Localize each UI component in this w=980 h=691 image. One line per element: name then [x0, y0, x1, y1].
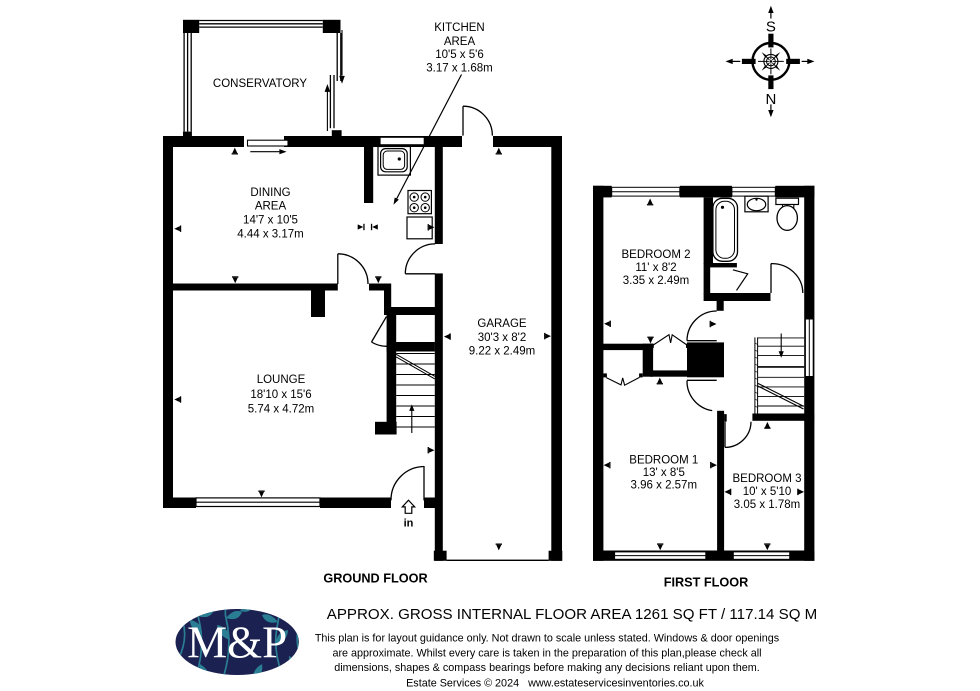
svg-text:This plan is for layout guidan: This plan is for layout guidance only. N…	[315, 633, 780, 645]
svg-text:BEDROOM 1: BEDROOM 1	[629, 454, 698, 466]
svg-text:BEDROOM 3: BEDROOM 3	[732, 473, 801, 485]
svg-text:S: S	[766, 18, 776, 35]
svg-text:GARAGE: GARAGE	[477, 318, 527, 330]
svg-text:M&P: M&P	[187, 618, 287, 668]
svg-text:are approximate. Whilst every: are approximate. Whilst every care is ta…	[332, 648, 761, 660]
svg-text:9.22 x 2.49m: 9.22 x 2.49m	[469, 345, 535, 357]
svg-text:APPROX. GROSS INTERNAL FLOOR A: APPROX. GROSS INTERNAL FLOOR AREA 1261 S…	[327, 606, 817, 623]
svg-text:14'7 x 10'5: 14'7 x 10'5	[243, 215, 298, 227]
svg-text:5.74 x 4.72m: 5.74 x 4.72m	[248, 404, 314, 416]
svg-text:30'3 x 8'2: 30'3 x 8'2	[478, 332, 527, 344]
svg-text:DINING: DINING	[250, 187, 290, 199]
svg-text:AREA: AREA	[255, 201, 287, 213]
svg-text:3.17 x 1.68m: 3.17 x 1.68m	[426, 62, 492, 74]
svg-text:3.35 x 2.49m: 3.35 x 2.49m	[623, 275, 689, 287]
svg-text:10' x 5'10: 10' x 5'10	[743, 486, 792, 498]
svg-text:11' x 8'2: 11' x 8'2	[635, 262, 676, 274]
svg-text:BEDROOM 2: BEDROOM 2	[621, 249, 690, 261]
svg-text:10'5 x 5'6: 10'5 x 5'6	[435, 49, 484, 61]
svg-text:LOUNGE: LOUNGE	[257, 374, 306, 386]
svg-text:AREA: AREA	[444, 36, 476, 48]
svg-text:FIRST FLOOR: FIRST FLOOR	[664, 576, 749, 590]
svg-text:Estate Services © 2024 www.e: Estate Services © 2024 www.estateservice…	[406, 678, 704, 690]
svg-text:CONSERVATORY: CONSERVATORY	[213, 78, 307, 90]
svg-text:3.05 x 1.78m: 3.05 x 1.78m	[734, 499, 800, 511]
svg-text:dimensions, shapes & compass b: dimensions, shapes & compass bearings be…	[334, 662, 760, 674]
svg-text:18'10 x 15'6: 18'10 x 15'6	[250, 389, 311, 401]
svg-text:KITCHEN: KITCHEN	[434, 22, 484, 34]
svg-text:4.44 x 3.17m: 4.44 x 3.17m	[237, 229, 303, 241]
svg-text:GROUND FLOOR: GROUND FLOOR	[323, 572, 427, 586]
svg-text:N: N	[765, 91, 776, 108]
svg-text:13' x 8'5: 13' x 8'5	[643, 467, 685, 479]
svg-text:in: in	[404, 518, 414, 530]
svg-text:3.96 x 2.57m: 3.96 x 2.57m	[631, 479, 697, 491]
